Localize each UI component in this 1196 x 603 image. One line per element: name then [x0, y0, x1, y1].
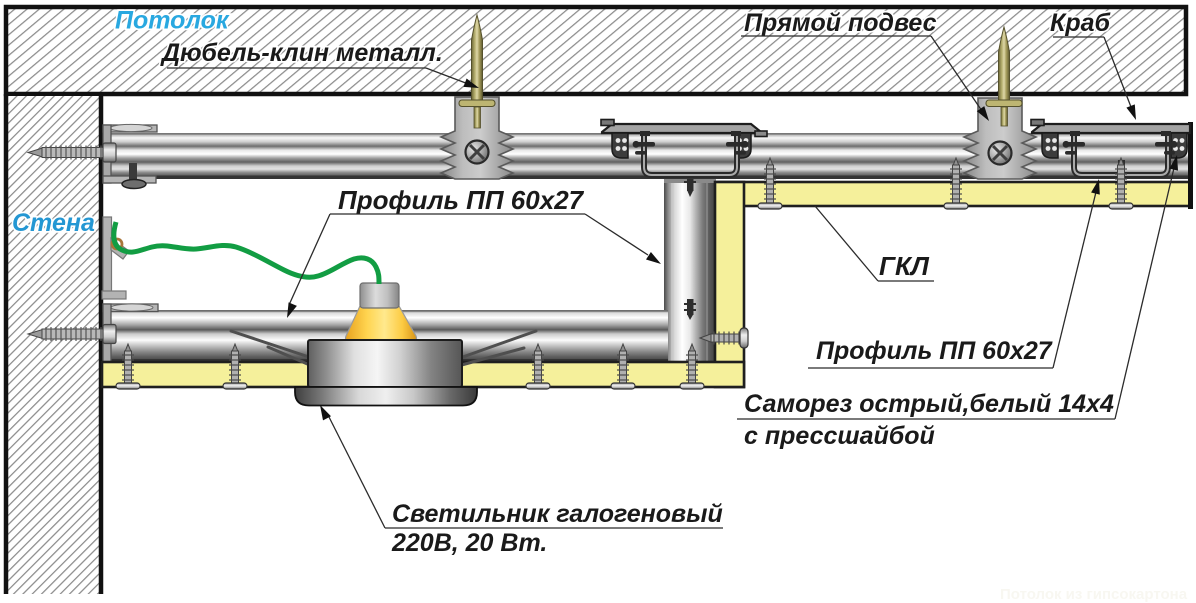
svg-text:Профиль ПП 60х27: Профиль ПП 60х27 — [338, 185, 585, 215]
svg-text:Прямой подвес: Прямой подвес — [744, 9, 937, 37]
svg-text:Стена: Стена — [12, 209, 95, 237]
svg-text:Светильник галогеновый: Светильник галогеновый — [392, 500, 723, 528]
svg-text:Саморез острый,белый 14х4: Саморез острый,белый 14х4 — [744, 390, 1114, 418]
svg-text:Краб: Краб — [1050, 9, 1112, 37]
svg-text:Потолок: Потолок — [115, 7, 230, 35]
svg-text:220В, 20 Вт.: 220В, 20 Вт. — [391, 529, 547, 557]
svg-text:Потолок из гипсокартона: Потолок из гипсокартона — [1000, 586, 1188, 603]
svg-text:Дюбель-клин металл.: Дюбель-клин металл. — [160, 39, 443, 67]
svg-text:ГКЛ: ГКЛ — [879, 251, 930, 281]
svg-text:с прессшайбой: с прессшайбой — [744, 422, 935, 450]
svg-text:Профиль ПП 60х27: Профиль ПП 60х27 — [816, 337, 1053, 365]
